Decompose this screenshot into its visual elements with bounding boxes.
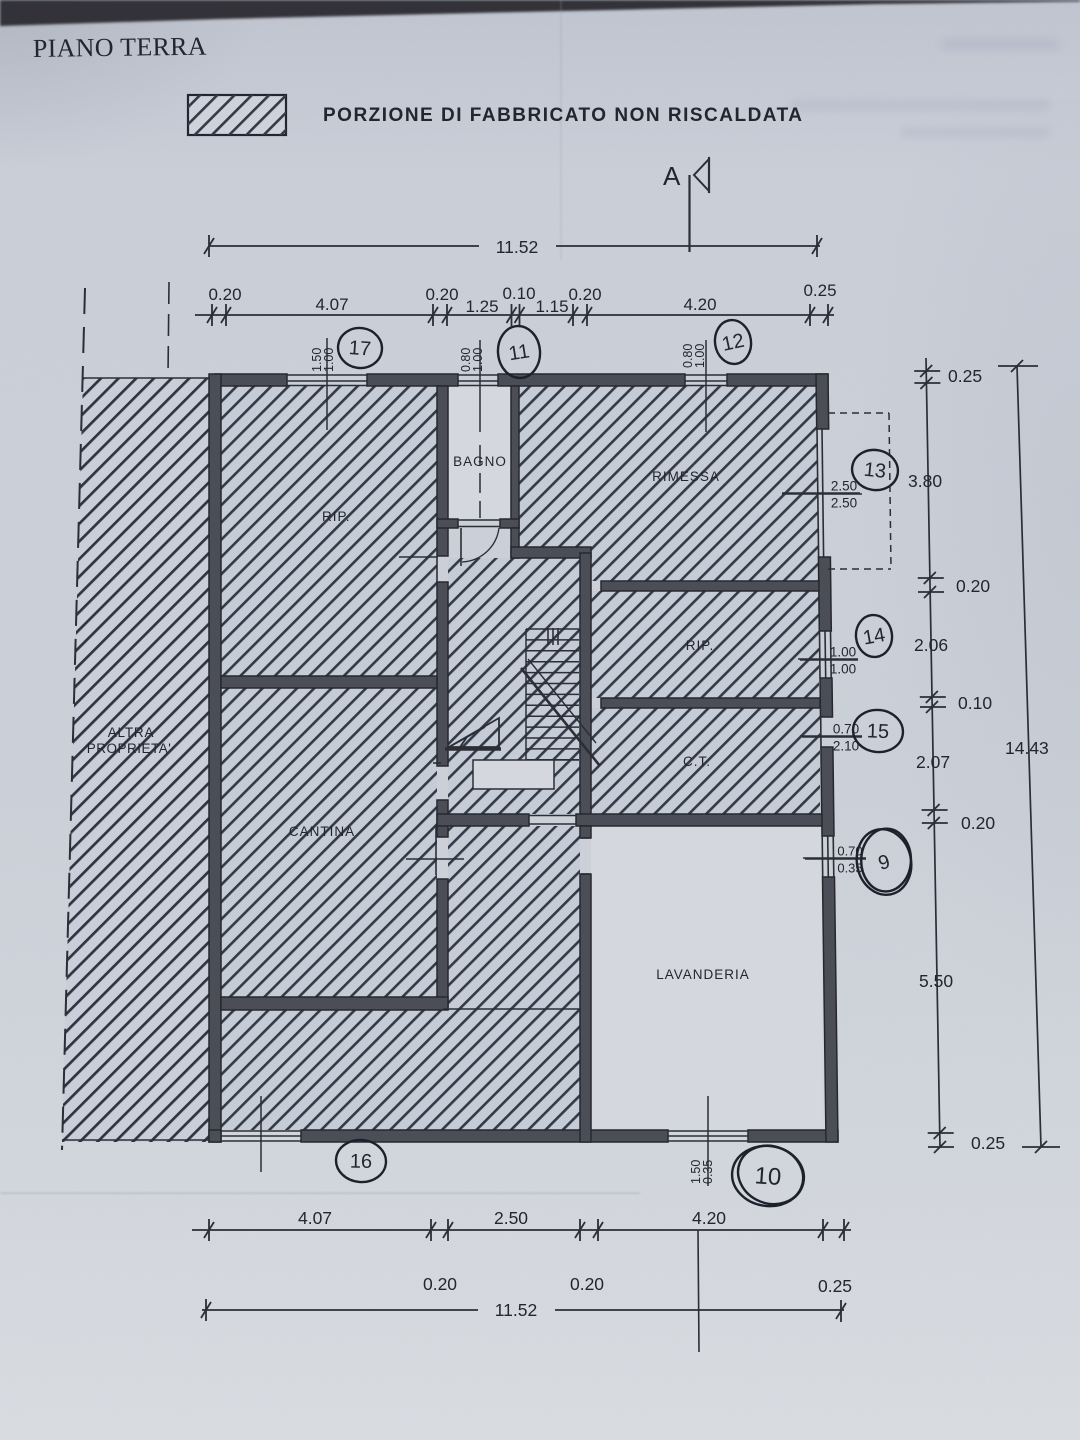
svg-text:2.07: 2.07: [916, 752, 950, 772]
svg-text:0.20: 0.20: [425, 285, 458, 304]
svg-text:PORZIONE DI FABBRICATO NON RIS: PORZIONE DI FABBRICATO NON RISCALDATA: [323, 105, 804, 126]
svg-text:PIANO TERRA: PIANO TERRA: [33, 32, 207, 63]
svg-text:CANTINA: CANTINA: [289, 824, 355, 839]
svg-text:4.20: 4.20: [683, 295, 716, 314]
svg-text:14: 14: [861, 624, 887, 650]
svg-text:14.43: 14.43: [1005, 738, 1049, 758]
svg-text:2.06: 2.06: [914, 635, 948, 655]
svg-text:RIP.: RIP.: [322, 509, 351, 524]
svg-text:1.00: 1.00: [471, 348, 485, 372]
svg-text:2.50: 2.50: [831, 496, 857, 511]
svg-text:15: 15: [866, 720, 889, 743]
svg-text:RIP.: RIP.: [686, 638, 715, 653]
svg-text:0.25: 0.25: [818, 1276, 852, 1296]
svg-text:0.20: 0.20: [423, 1274, 457, 1294]
svg-text:0.20: 0.20: [956, 576, 990, 596]
svg-text:17: 17: [348, 337, 372, 360]
svg-text:13: 13: [863, 459, 887, 483]
svg-text:2.50: 2.50: [831, 479, 857, 494]
svg-text:4.07: 4.07: [298, 1208, 332, 1228]
svg-text:1.15: 1.15: [535, 297, 568, 316]
svg-text:4.20: 4.20: [692, 1208, 726, 1228]
svg-text:2.50: 2.50: [494, 1208, 528, 1228]
svg-text:0.35: 0.35: [701, 1160, 715, 1184]
svg-text:1.00: 1.00: [830, 645, 856, 660]
svg-text:11.52: 11.52: [496, 237, 539, 257]
svg-text:BAGNO: BAGNO: [453, 454, 507, 469]
svg-text:1.00: 1.00: [322, 348, 336, 372]
svg-text:0.10: 0.10: [958, 693, 992, 713]
svg-text:10: 10: [754, 1162, 783, 1191]
svg-text:4.07: 4.07: [315, 295, 348, 314]
svg-text:1.00: 1.00: [830, 662, 856, 677]
svg-text:0.25: 0.25: [971, 1133, 1005, 1153]
svg-text:11.52: 11.52: [495, 1300, 538, 1320]
svg-text:0.20: 0.20: [208, 285, 241, 304]
svg-text:PROPRIETA': PROPRIETA': [87, 741, 172, 756]
svg-text:0.20: 0.20: [961, 813, 995, 833]
svg-text:0.10: 0.10: [502, 284, 535, 303]
svg-text:0.20: 0.20: [568, 285, 601, 304]
svg-text:RIMESSA: RIMESSA: [652, 469, 720, 484]
svg-text:3.80: 3.80: [908, 471, 942, 491]
svg-text:1.00: 1.00: [693, 344, 707, 368]
svg-text:12: 12: [720, 330, 746, 356]
svg-text:11: 11: [507, 340, 531, 365]
svg-text:1.25: 1.25: [465, 297, 498, 316]
svg-text:0.25: 0.25: [803, 281, 836, 300]
svg-text:0.20: 0.20: [570, 1274, 604, 1294]
svg-text:0.25: 0.25: [948, 366, 982, 386]
svg-text:ALTRA: ALTRA: [108, 725, 155, 740]
svg-text:16: 16: [350, 1151, 373, 1173]
svg-text:A: A: [663, 161, 681, 191]
svg-text:LAVANDERIA: LAVANDERIA: [656, 967, 750, 982]
svg-text:5.50: 5.50: [919, 971, 953, 991]
svg-text:C.T.: C.T.: [683, 754, 711, 769]
